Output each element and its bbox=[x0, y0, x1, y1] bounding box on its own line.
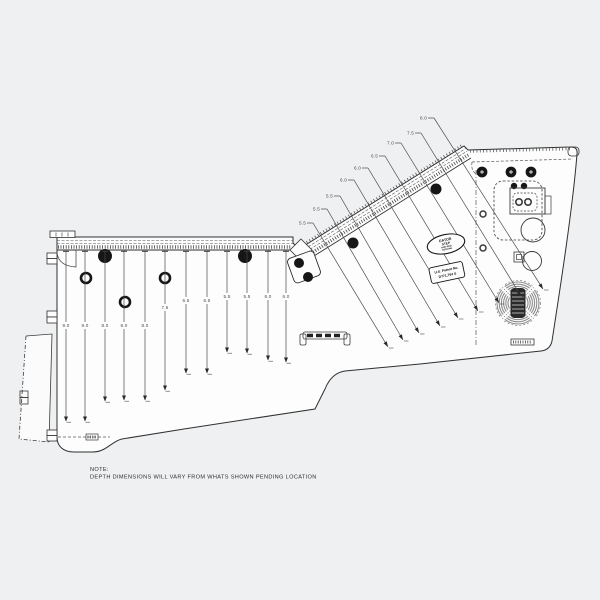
hinge-bracket bbox=[47, 253, 57, 259]
hinge-bracket bbox=[47, 436, 57, 442]
note-body: DEPTH DIMENSIONS WILL VARY FROM WHATS SH… bbox=[90, 475, 317, 481]
depth-value: 8.0 bbox=[142, 323, 149, 328]
depth-value: 7.5 bbox=[162, 305, 169, 310]
depth-value: 9.0 bbox=[63, 323, 70, 328]
depth-value: 9.0 bbox=[82, 323, 89, 328]
deck-template-drawing: 9.09.08.08.08.07.56.56.55.55.56.06.0 5.5… bbox=[0, 0, 600, 600]
bolt bbox=[303, 272, 313, 282]
hinge-bracket bbox=[47, 311, 57, 317]
depth-value: 6.0 bbox=[340, 178, 347, 183]
depth-value: 5.5 bbox=[244, 294, 251, 299]
hinge-bracket bbox=[47, 259, 57, 265]
depth-value: 7.5 bbox=[407, 131, 414, 136]
depth-value: 8.0 bbox=[102, 323, 109, 328]
depth-value: 5.5 bbox=[313, 207, 320, 212]
depth-value: 5.5 bbox=[326, 194, 333, 199]
depth-value: 6.0 bbox=[354, 166, 361, 171]
depth-value: 6.0 bbox=[283, 294, 290, 299]
depth-value: 6.5 bbox=[371, 154, 378, 159]
depth-value: 7.0 bbox=[387, 141, 394, 146]
depth-value: 8.0 bbox=[121, 323, 128, 328]
depth-value: 5.5 bbox=[299, 221, 306, 226]
depth-value: 5.5 bbox=[224, 294, 231, 299]
depth-value: 6.5 bbox=[204, 298, 211, 303]
depth-value: 8.0 bbox=[420, 116, 427, 121]
bolt bbox=[294, 258, 304, 268]
note-title: NOTE: bbox=[90, 467, 109, 473]
hinge-bracket bbox=[47, 430, 57, 436]
hinge-bracket bbox=[47, 317, 57, 323]
rail-end-tab bbox=[50, 231, 75, 238]
depth-value: 6.0 bbox=[265, 294, 272, 299]
depth-value: 6.5 bbox=[183, 298, 190, 303]
mounting-plug bbox=[431, 184, 442, 195]
